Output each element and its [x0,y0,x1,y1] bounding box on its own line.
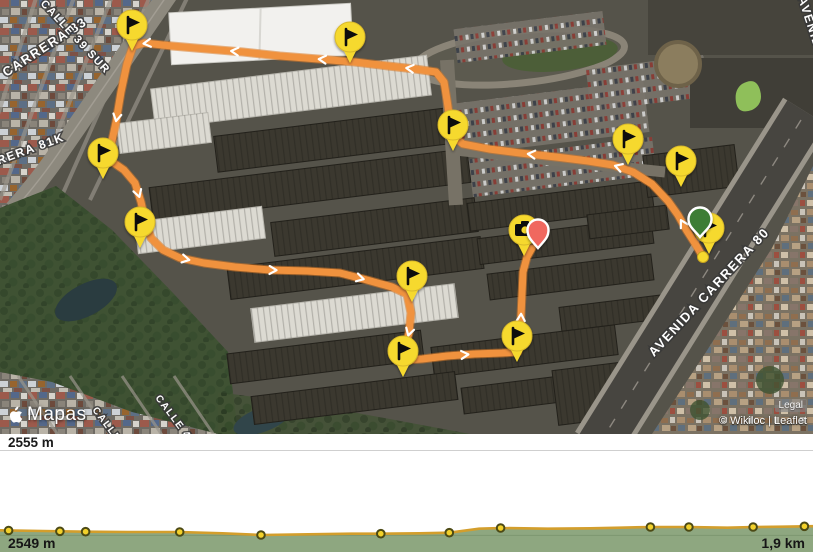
total-distance-label: 1,9 km [761,535,805,551]
elevation-waypoint-dot[interactable] [5,527,13,535]
elevation-waypoint-dot[interactable] [497,524,505,532]
apple-maps-attribution: Mapas [8,404,87,426]
trailhead-dot[interactable] [698,252,709,263]
elevation-max-bar: 2555 m [0,434,813,451]
elevation-waypoint-dot[interactable] [257,531,265,539]
elevation-waypoint-dot[interactable] [82,528,90,536]
legal-link[interactable]: Legal [775,399,807,412]
map-credits[interactable]: © Wikiloc | Leaflet [719,415,807,427]
elevation-waypoint-dot[interactable] [647,523,655,531]
elevation-waypoint-dot[interactable] [176,528,184,536]
wikiloc-trail-view: CARRERA 83CALLE 39 SURCARRERA 81KCALLECA… [0,0,813,559]
elevation-waypoint-dot[interactable] [377,530,385,538]
elevation-waypoint-dot[interactable] [446,529,454,537]
elevation-waypoint-dot[interactable] [685,523,693,531]
apple-logo-icon [8,406,23,424]
satellite-map[interactable]: CARRERA 83CALLE 39 SURCARRERA 81KCALLECA… [0,0,813,434]
map[interactable]: CARRERA 83CALLE 39 SURCARRERA 81KCALLECA… [0,0,813,434]
apple-maps-label: Mapas [27,404,87,426]
elevation-profile[interactable]: 2549 m 1,9 km [0,452,813,552]
elevation-waypoint-dot[interactable] [749,523,757,531]
elevation-waypoint-dot[interactable] [56,528,64,536]
max-elevation-label: 2555 m [8,435,54,450]
elevation-plot[interactable] [0,523,813,553]
elevation-waypoint-dot[interactable] [801,523,809,531]
min-elevation-label: 2549 m [8,535,55,551]
